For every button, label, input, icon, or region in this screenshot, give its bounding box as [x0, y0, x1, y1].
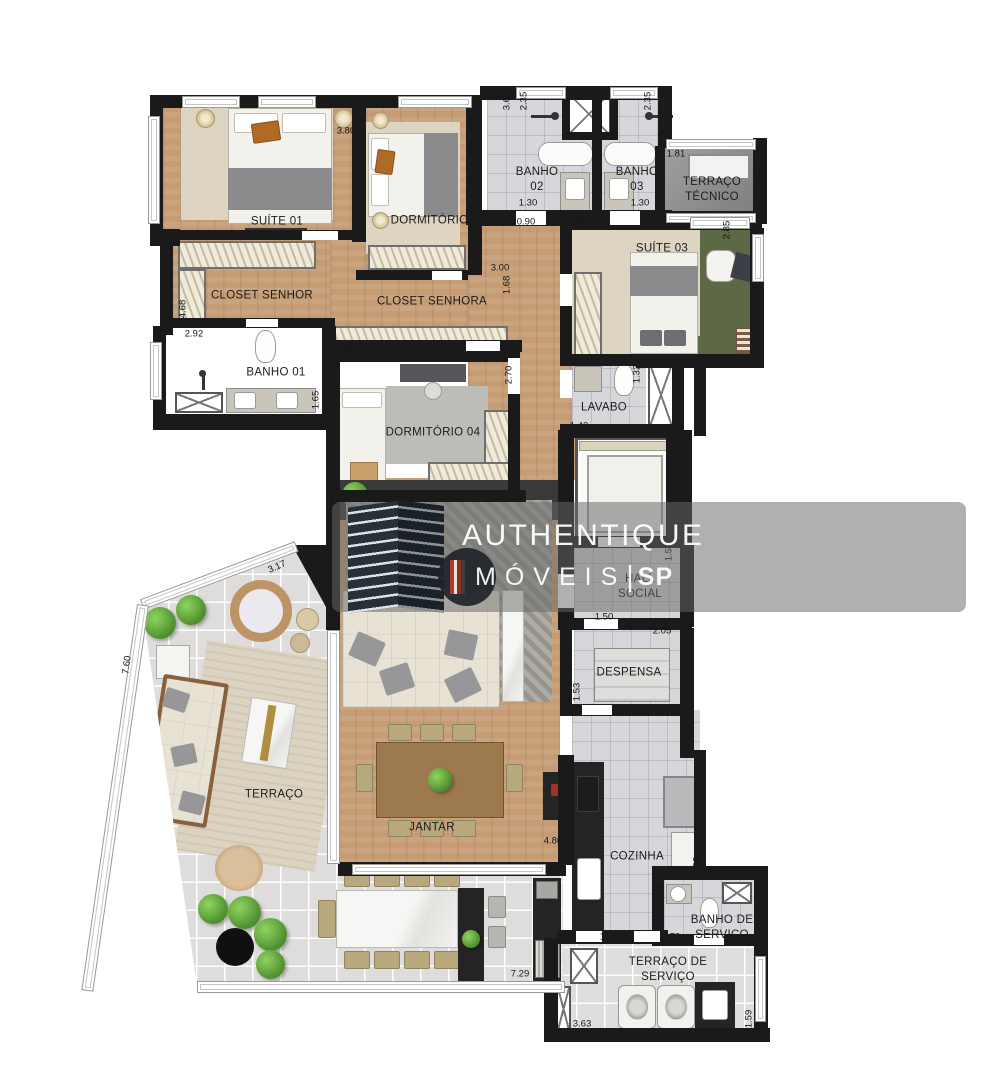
- banho03-bathtub: [604, 142, 656, 166]
- suite01-accent-pillow: [251, 120, 282, 144]
- door-despensa[interactable]: [582, 705, 612, 715]
- room-label-dorm02: DORMITÓRIO 02: [390, 214, 486, 229]
- dimension: 3.00: [491, 263, 510, 274]
- dimension: 2.09: [692, 857, 703, 876]
- outdoor-guest-chair-1: [488, 896, 506, 918]
- dimension: 1.14: [656, 884, 667, 903]
- dimension: 3.63: [573, 1019, 592, 1030]
- outdoor-chair-5: [344, 951, 370, 969]
- terraco-plant-3: [198, 894, 228, 924]
- terraco-side-table: [296, 608, 319, 631]
- room-label-dorm04: DORMITÓRIO 04: [383, 426, 483, 441]
- wall-segment: [326, 352, 518, 362]
- door-banho03[interactable]: [610, 211, 640, 225]
- dimension: 2.35: [519, 92, 530, 111]
- dimension: 1.50: [595, 612, 614, 623]
- floor-plan: SUÍTE 01 DORMITÓRIO 02 BANHO 02 BANHO 03…: [0, 0, 1003, 1080]
- terraco-plant-5: [254, 918, 287, 951]
- suite03-pillow-1: [640, 330, 662, 346]
- wall-segment: [560, 628, 572, 712]
- wall-segment: [680, 712, 694, 758]
- room-label-terraco: TERRAÇO: [234, 788, 314, 803]
- banho02-shower-head: [551, 112, 559, 120]
- window: [752, 234, 764, 282]
- outdoor-chair-6: [374, 951, 400, 969]
- door-cozinha-1[interactable]: [576, 931, 602, 942]
- wall-segment: [153, 414, 335, 430]
- room-label-jantar: JANTAR: [397, 821, 467, 836]
- wall-segment: [558, 755, 574, 865]
- ventilation-shaft-mid: [648, 362, 674, 428]
- dimension: 1.79: [600, 932, 619, 943]
- watermark-building-logo-side: [398, 500, 444, 613]
- banho01-shower-arm: [202, 376, 205, 390]
- jantar-centerpiece: [428, 768, 452, 792]
- dorm02-lamp-2: [372, 212, 389, 229]
- outdoor-island-plant: [462, 930, 480, 948]
- door-cozinha-2[interactable]: [634, 931, 660, 942]
- terraco-pouf: [215, 845, 263, 891]
- banho02-shower-arm: [531, 115, 552, 118]
- room-label-despensa: DESPENSA: [589, 666, 669, 681]
- wall-segment: [592, 100, 602, 214]
- closet-senhor-wardrobe-top: [178, 241, 316, 269]
- wall-segment: [468, 225, 482, 275]
- dorm04-pillow: [342, 392, 382, 408]
- dimension: 4.68: [178, 300, 189, 319]
- washer-1: [618, 985, 656, 1029]
- dorm02-pillow-2: [371, 174, 389, 206]
- suite01-lamp-left: [196, 109, 215, 128]
- suite03-closet: [574, 272, 602, 356]
- room-label-lavabo: LAVABO: [569, 401, 639, 416]
- wall-segment: [558, 618, 692, 630]
- terraco-plant-1: [144, 607, 176, 639]
- wall-segment: [680, 628, 694, 714]
- jantar-chair-1: [388, 724, 412, 741]
- outdoor-chair-8: [434, 951, 460, 969]
- dimension: 1.65: [311, 391, 322, 410]
- window: [398, 96, 472, 108]
- dorm04-desk-chair: [424, 382, 442, 400]
- terraco-plant-6: [256, 950, 285, 979]
- wall-segment: [326, 490, 526, 502]
- wall-segment: [694, 360, 706, 436]
- door-banho01[interactable]: [246, 319, 278, 327]
- window: [148, 116, 160, 224]
- terraco-console: [156, 645, 190, 679]
- dimension: 1.81: [667, 149, 686, 160]
- dimension: 1.79: [662, 932, 681, 943]
- terraco-side-table-2: [290, 633, 310, 653]
- dimension: 0.90: [517, 217, 536, 228]
- window-jantar: [352, 864, 546, 875]
- wall-segment: [466, 95, 482, 225]
- private-elevator-lintel: [579, 441, 667, 451]
- door-dorm02[interactable]: [432, 271, 462, 280]
- banho02-sink: [565, 178, 585, 200]
- watermark-subbrand: MÓVEIS | SP: [450, 560, 673, 594]
- watermark-building-logo: [348, 500, 400, 613]
- banho-servico-shower: [722, 882, 752, 904]
- terraco-daybed: [230, 580, 292, 642]
- outdoor-dining-table: [336, 890, 458, 948]
- jantar-chair-2: [420, 724, 444, 741]
- dimension: 7.29: [511, 969, 530, 980]
- room-label-suite01: SUÍTE 01: [232, 215, 322, 230]
- room-label-terraco-tecnico: TERRAÇO TÉCNICO: [677, 175, 747, 205]
- room-label-closet-senhor: CLOSET SENHOR: [202, 289, 322, 304]
- washer-2: [657, 985, 695, 1029]
- gourmet-sink: [536, 881, 558, 899]
- window: [182, 96, 240, 108]
- service-lift: [570, 948, 598, 984]
- jantar-chair-3: [452, 724, 476, 741]
- banho01-shower: [175, 392, 223, 413]
- window-terrace-bottom: [197, 981, 565, 993]
- window: [258, 96, 316, 108]
- dimension: 2.05: [653, 626, 672, 637]
- jantar-chair-8: [506, 764, 523, 792]
- dimension: 4.80: [544, 836, 563, 847]
- door-suite01[interactable]: [302, 231, 338, 240]
- room-label-banho01: BANHO 01: [231, 366, 321, 381]
- cozinha-cooktop: [577, 776, 599, 812]
- room-label-banho02: BANHO 02: [512, 165, 562, 195]
- window: [755, 956, 766, 1022]
- dimension: 3.78: [331, 345, 350, 356]
- door-lavabo[interactable]: [560, 370, 572, 398]
- dimension: 1.68: [502, 276, 513, 295]
- window-estar-terrace: [327, 630, 340, 864]
- dorm02-blanket: [424, 133, 458, 217]
- wall-segment: [562, 132, 618, 140]
- outdoor-chair-7: [404, 951, 430, 969]
- dorm02-lamp-1: [372, 112, 389, 129]
- dimension: 2.35: [643, 92, 654, 111]
- door-suite03[interactable]: [560, 274, 572, 306]
- suite01-pillow-2: [282, 113, 326, 133]
- banho-servico-sink: [670, 886, 686, 902]
- suite03-blanket: [630, 266, 698, 296]
- window: [150, 342, 162, 400]
- watermark-moveis-text: MÓVEIS: [475, 563, 626, 592]
- banho01-toilet: [255, 330, 276, 363]
- dimension: 2.70: [504, 366, 515, 385]
- outdoor-bench: [318, 900, 336, 938]
- wall-segment: [652, 866, 762, 880]
- dimension: 1.53: [572, 683, 583, 702]
- suite01-blanket: [228, 168, 332, 210]
- dimension: 2.85: [722, 221, 733, 240]
- suite03-pillow-2: [664, 330, 686, 346]
- room-label-banho-servico: BANHO DE SERVIÇO: [680, 913, 764, 943]
- outdoor-guest-chair-2: [488, 926, 506, 948]
- window-terrace-left: [81, 604, 149, 992]
- watermark-books-icon: [450, 560, 465, 594]
- dimension: 1.40: [570, 421, 589, 432]
- watermark-separator: |: [626, 561, 634, 594]
- laundry-sink: [702, 990, 728, 1020]
- wall-segment: [694, 750, 706, 868]
- room-label-suite03: SUÍTE 03: [617, 242, 707, 257]
- wall-segment: [544, 1028, 770, 1042]
- dimension: 1.30: [631, 198, 650, 209]
- dimension: 2.92: [185, 329, 204, 340]
- wall-segment: [672, 354, 684, 436]
- wall-segment: [560, 704, 692, 716]
- room-label-terraco-servico: TERRAÇO DE SERVIÇO: [616, 955, 720, 985]
- jantar-chair-7: [356, 764, 373, 792]
- window: [690, 217, 750, 229]
- closet-senhora-wardrobe: [368, 245, 466, 270]
- banho01-sink-2: [276, 392, 298, 409]
- dimension: 1.32: [632, 365, 643, 384]
- wall-segment: [560, 306, 572, 360]
- dimension: 3.75: [568, 217, 587, 228]
- room-label-cozinha: COZINHA: [602, 850, 672, 865]
- terraco-plant-2: [176, 595, 206, 625]
- lavabo-vanity: [574, 366, 602, 392]
- dimension: 3.60: [502, 92, 513, 111]
- terraco-fire-pit: [216, 928, 254, 966]
- cozinha-sink-cabinet: [577, 858, 601, 900]
- dorm02-accent-pillow: [374, 149, 395, 175]
- dimension: 1.59: [744, 1010, 755, 1029]
- watermark-sp-text: SP: [638, 563, 673, 592]
- room-label-closet-senhora: CLOSET SENHORA: [367, 295, 497, 310]
- banho02-bathtub: [538, 142, 593, 166]
- watermark-brand-text: AUTHENTIQUE: [462, 519, 705, 553]
- dimension: 3.80: [337, 126, 356, 137]
- wall-segment: [322, 326, 336, 426]
- room-label-banho03: BANHO 03: [612, 165, 662, 195]
- dorm04-desk: [400, 364, 466, 382]
- dimension: 1.30: [519, 198, 538, 209]
- wall-segment: [560, 228, 572, 274]
- banho01-sink-1: [234, 392, 256, 409]
- door-closet-senhora[interactable]: [466, 341, 500, 351]
